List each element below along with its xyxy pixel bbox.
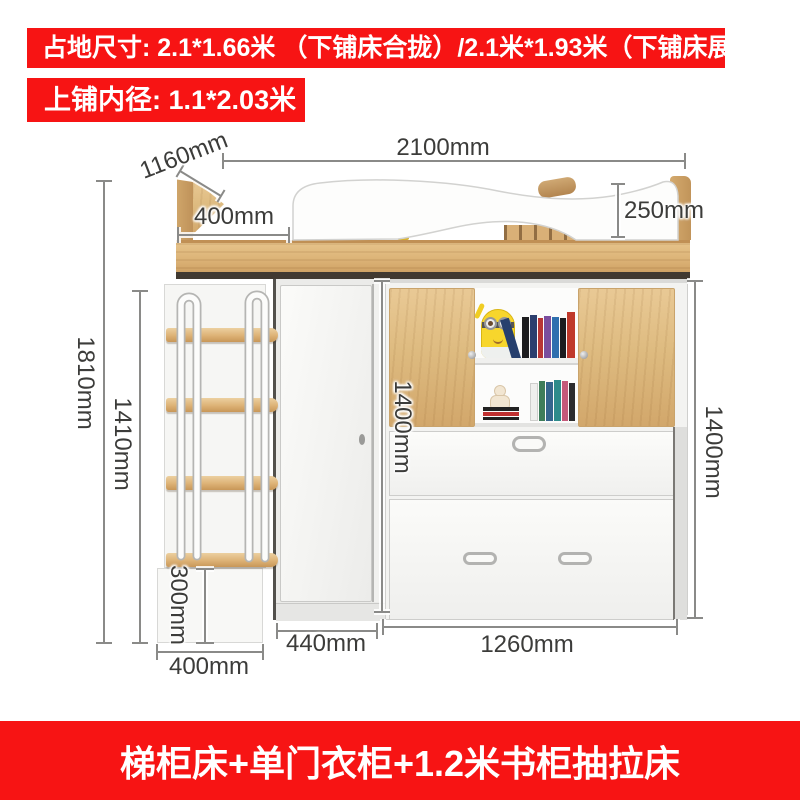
- dim-label-top-width: 2100mm: [396, 134, 489, 162]
- dim-label-cabinet-height-left: 1400mm: [388, 380, 416, 473]
- drawer-handle-icon: [512, 436, 546, 452]
- bedding-sliver: [397, 233, 409, 240]
- dim-label-depth: 1160mm: [136, 127, 232, 186]
- drawer-handle-icon: [558, 552, 592, 565]
- bookcase-unit: [385, 279, 688, 620]
- guard-rail: [293, 180, 678, 240]
- ladder-step: [166, 476, 278, 490]
- bed-platform: [176, 240, 690, 273]
- book-stack: [483, 407, 519, 421]
- dim-label-wardrobe-depth: 440mm: [286, 630, 366, 658]
- pullout-drawer-bottom: [389, 499, 674, 620]
- platform-shadow-strip: [176, 272, 690, 279]
- cabinet-side-strip: [673, 427, 687, 620]
- dim-label-step-height: 300mm: [164, 565, 192, 645]
- ladder-column: [164, 284, 266, 568]
- bed-slats: [504, 225, 576, 241]
- ladder-step: [166, 398, 278, 412]
- headboard-edge: [177, 177, 193, 240]
- drawer-handle-icon: [463, 552, 497, 565]
- pullout-drawer-top: [389, 431, 674, 496]
- upper-bunk-inner-size-banner: 上铺内径: 1.1*2.03米: [27, 78, 305, 122]
- wardrobe: [273, 279, 385, 620]
- dim-label-ladder-height: 1410mm: [108, 397, 136, 490]
- dim-label-cabinet-height-right: 1400mm: [699, 405, 727, 498]
- dim-label-pullout-width: 1260mm: [480, 631, 573, 659]
- ladder-step: [166, 328, 278, 342]
- dim-label-rail-height: 250mm: [624, 197, 704, 225]
- keyhole-icon: [359, 434, 365, 445]
- dim-label-ladder-width: 400mm: [169, 653, 249, 681]
- books-lower-row: [530, 380, 576, 421]
- left-door-knob-icon: [468, 351, 476, 359]
- open-shelf: [475, 288, 578, 427]
- dim-label-headboard-gap: 400mm: [194, 203, 274, 231]
- pillow: [537, 176, 577, 199]
- product-title-banner: 梯柜床+单门衣柜+1.2米书柜抽拉床: [0, 721, 800, 800]
- wardrobe-door: [280, 285, 372, 602]
- bookcase-right-door: [578, 288, 675, 427]
- dim-label-overall-height: 1810mm: [71, 336, 99, 429]
- footprint-size-banner: 占地尺寸: 2.1*1.66米 （下铺床合拢）/2.1米*1.93米（下铺床展开…: [27, 28, 725, 68]
- shelf-board: [475, 358, 578, 365]
- books-top-row: [512, 312, 576, 358]
- loft-bed-dimension-diagram: 2100mm 1160mm 400mm 250mm 1810mm 1410mm …: [0, 0, 800, 800]
- right-door-knob-icon: [580, 351, 588, 359]
- wardrobe-base: [276, 603, 385, 621]
